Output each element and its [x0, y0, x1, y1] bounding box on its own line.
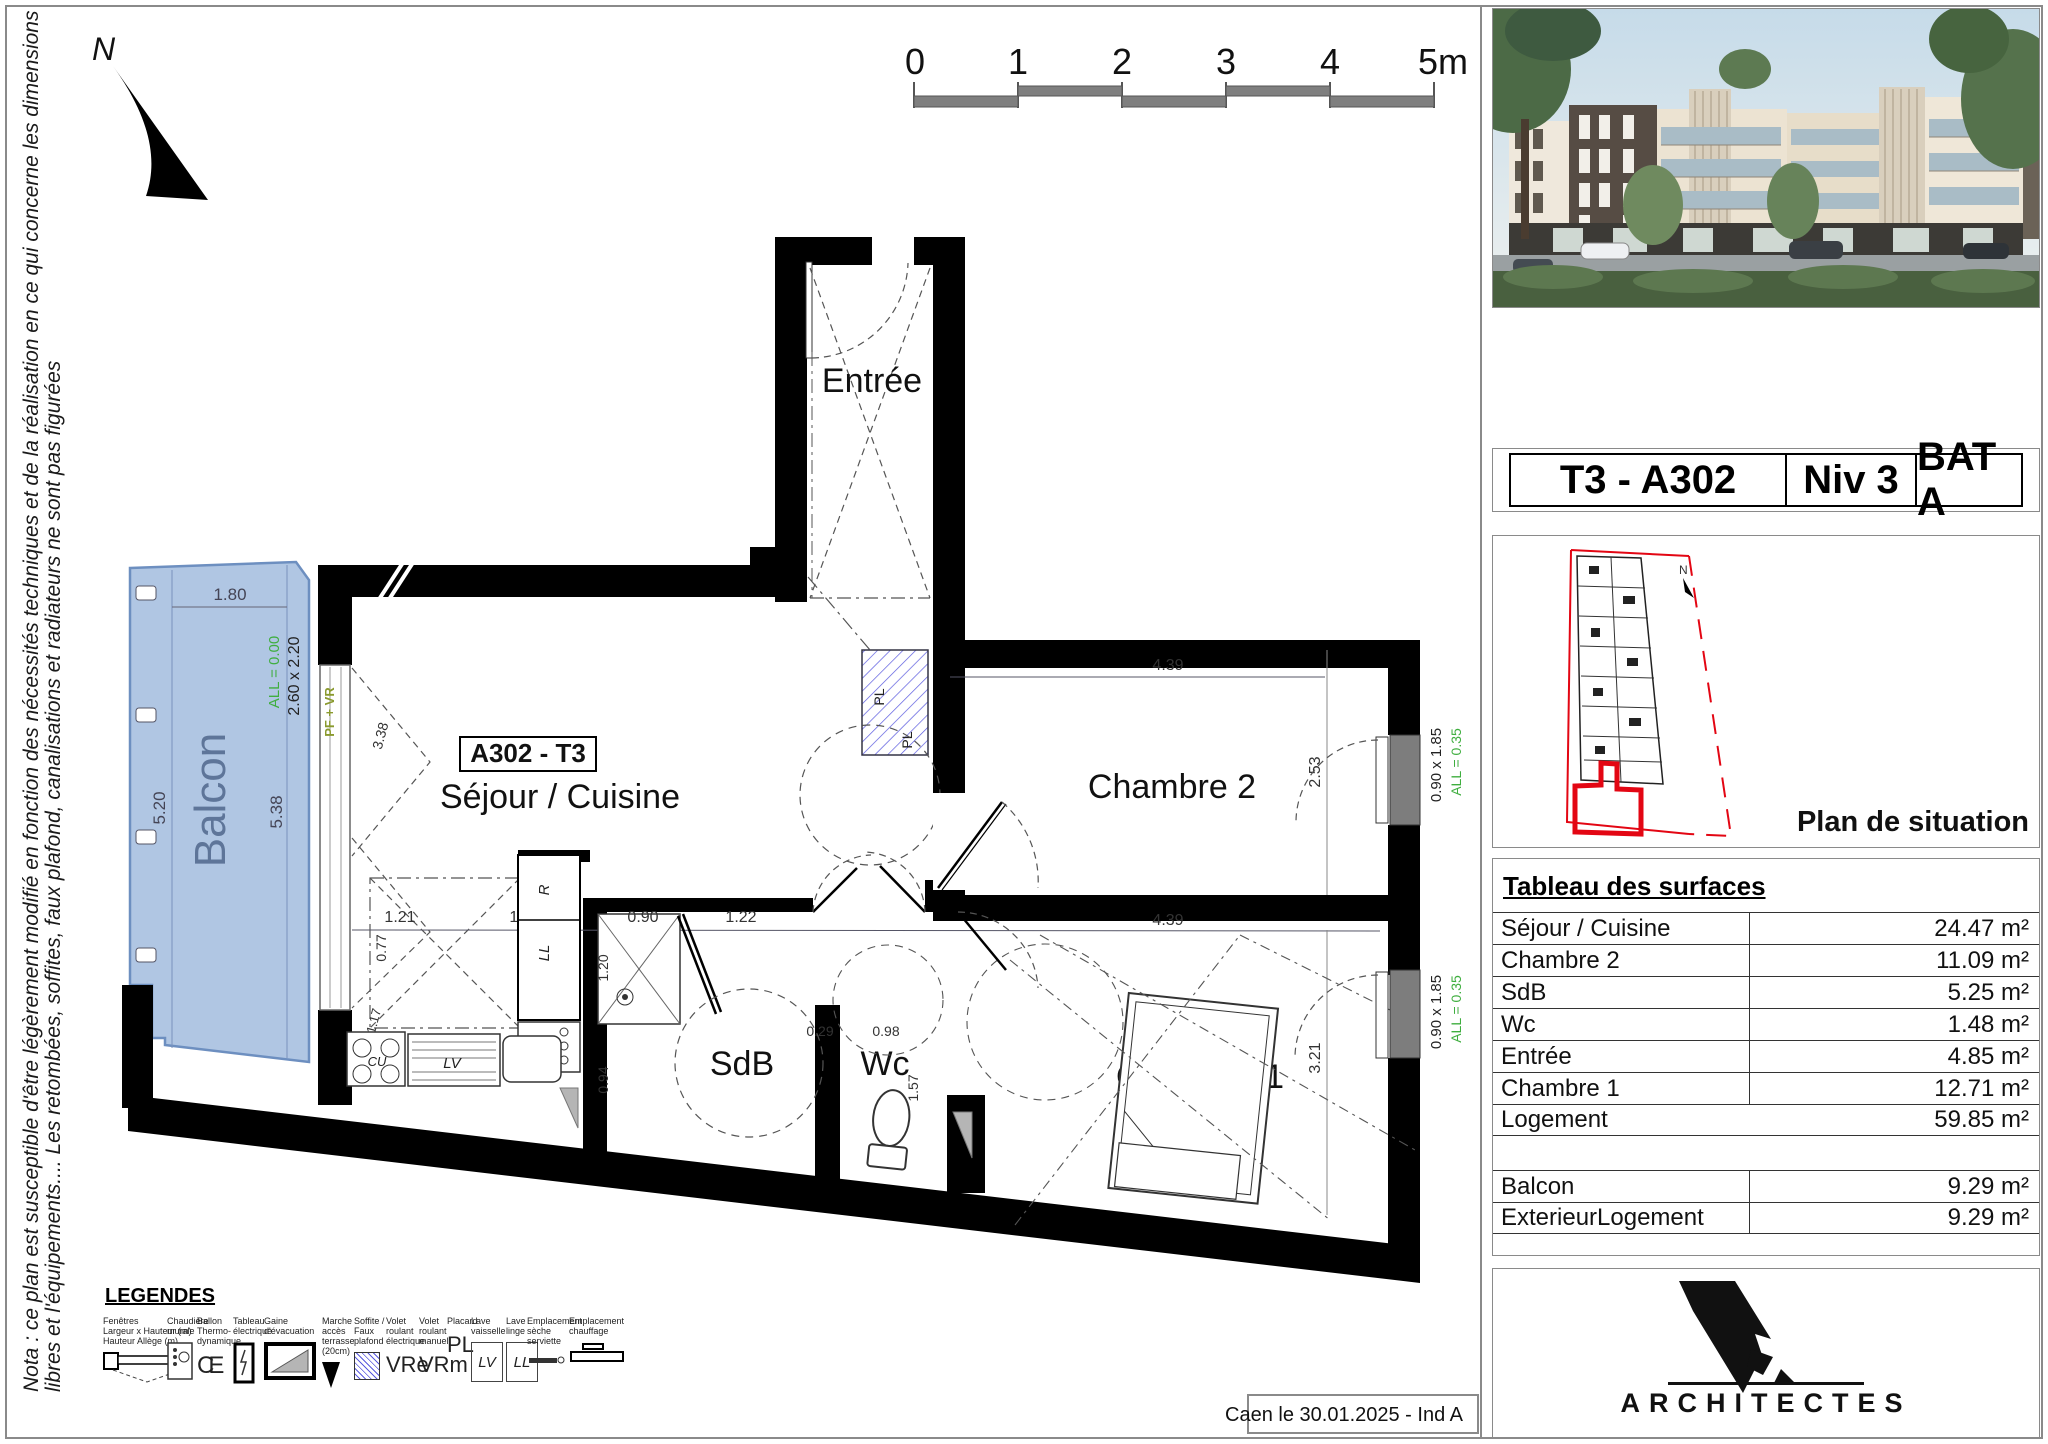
north-arrow-icon [113, 66, 208, 200]
title-unit: T3 - A302 [1511, 455, 1787, 505]
dim-157: 1.57 [905, 1074, 921, 1101]
chambre2-room: Chambre 2 4.39 2.53 0.90 x 1.85 ALL = 0.… [933, 650, 1464, 895]
dim-321: 3.21 [1307, 1042, 1324, 1073]
scale-2: 2 [1112, 41, 1132, 82]
situation-north-arrow-icon [1683, 578, 1694, 598]
entree-room: Entrée [806, 262, 930, 650]
dim-117: 1.17 [363, 1007, 384, 1035]
lv-symbol: LV [471, 1342, 503, 1382]
situation-map: N [1493, 536, 2039, 847]
table-row: Wc1.48 m² [1493, 1008, 2039, 1040]
legend-item-chauffage: Emplacement chauffage [569, 1316, 635, 1369]
scale-3: 3 [1216, 41, 1236, 82]
nota-line2: libres et l'équipements.... Les retombée… [42, 360, 65, 1392]
cooktop-label: CU [368, 1054, 387, 1069]
dim-120: 1.20 [595, 954, 611, 981]
balcony-all000: ALL = 0.00 [266, 636, 283, 708]
building-render-illustration [1493, 9, 2039, 307]
scale-bar: 0 1 2 3 4 5m [905, 41, 1468, 108]
room-label-balcon: Balcon [186, 733, 235, 868]
balcony-dim-520: 5.20 [150, 791, 169, 824]
title-level: Niv 3 [1787, 455, 1917, 505]
sejour-window-pfvr: PF + VR [322, 687, 337, 737]
table-row: Chambre 112.71 m² [1493, 1072, 2039, 1104]
placard-label-1: PL [871, 688, 887, 705]
north-label: N [92, 31, 116, 67]
balcony-dim-538: 5.38 [267, 795, 286, 828]
chambre2-window-dim: 0.90 x 1.85 [1428, 728, 1445, 802]
step-triangle-icon [322, 1362, 340, 1388]
dim-121: 1.21 [384, 909, 415, 926]
date-line: Caen le 30.01.2025 - Ind A [1225, 1404, 1464, 1426]
dim-439b: 4.39 [1152, 912, 1183, 929]
table-row: Chambre 211.09 m² [1493, 944, 2039, 976]
scale-1: 1 [1008, 41, 1028, 82]
chambre1-window-dim: 0.90 x 1.85 [1428, 975, 1445, 1049]
table-row: Séjour / Cuisine24.47 m² [1493, 912, 2039, 944]
balcony-window-dim: 2.60 x 2.20 [286, 636, 303, 715]
room-label-entree: Entrée [822, 362, 922, 400]
dim-090: 0.90 [627, 909, 658, 926]
radiator-icon [569, 1342, 635, 1369]
dim-439a: 4.39 [1152, 657, 1183, 674]
balcony-dim-180: 1.80 [213, 585, 246, 604]
surface-table-title: Tableau des surfaces [1503, 871, 2039, 902]
room-label-chambre2: Chambre 2 [1088, 768, 1256, 806]
chambre2-window-all: ALL = 0.35 [1448, 728, 1464, 796]
washer-label: LL [536, 945, 553, 962]
building-photo [1492, 8, 2040, 308]
unit-label: A302 - T3 [470, 738, 586, 768]
situation-panel: N Plan de situation [1492, 535, 2040, 848]
legend-title: LEGENDES [105, 1285, 215, 1308]
surface-table: Tableau des surfaces Séjour / Cuisine24.… [1492, 858, 2040, 1256]
table-row: SdB5.25 m² [1493, 976, 2039, 1008]
logo-rule [1668, 1382, 1864, 1385]
logo-text: ARCHITECTES [1493, 1388, 2039, 1419]
scale-4: 4 [1320, 41, 1340, 82]
title-building: BAT A [1917, 455, 2021, 505]
dim-122: 1.22 [725, 909, 756, 926]
placard-label-2: PL [899, 731, 915, 748]
architect-logo-panel: ARCHITECTES [1492, 1268, 2040, 1438]
dim-253: 2.53 [1307, 756, 1324, 787]
placard: PL PL [862, 650, 928, 755]
dim-098: 0.98 [872, 1023, 899, 1039]
title-block: T3 - A302 Niv 3 BAT A [1492, 448, 2040, 512]
nota-line1: Nota : ce plan est susceptible d'être lé… [20, 10, 43, 1392]
table-row-balcon: Balcon9.29 m² [1493, 1170, 2039, 1202]
situation-north-label: N [1679, 563, 1688, 577]
step-triangle-1 [560, 1088, 578, 1128]
table-row-logement: Logement59.85 m² [1493, 1104, 2039, 1136]
dishwasher-label: LV [443, 1055, 463, 1072]
fridge-label: R [536, 884, 553, 895]
room-label-sdb: SdB [710, 1045, 774, 1083]
dim-338: 3.38 [369, 720, 392, 751]
room-label-sejour: Séjour / Cuisine [440, 778, 680, 816]
scale-5m: 5m [1418, 41, 1468, 82]
chambre1-window-all: ALL = 0.35 [1448, 975, 1464, 1043]
scale-0: 0 [905, 41, 925, 82]
soffit-hatch-icon [354, 1352, 380, 1380]
room-label-wc: Wc [860, 1045, 909, 1083]
situation-title: Plan de situation [1797, 806, 2029, 839]
table-row: Entrée4.85 m² [1493, 1040, 2039, 1072]
table-row-exterieur: ExterieurLogement9.29 m² [1493, 1202, 2039, 1234]
dim-077: 0.77 [373, 934, 389, 961]
dim-094: 0.94 [595, 1066, 611, 1093]
dim-029: 0.29 [806, 1023, 833, 1039]
balcony: 1.80 5.20 5.38 ALL = 0.00 2.60 x 2.20 Ba… [130, 562, 309, 1062]
